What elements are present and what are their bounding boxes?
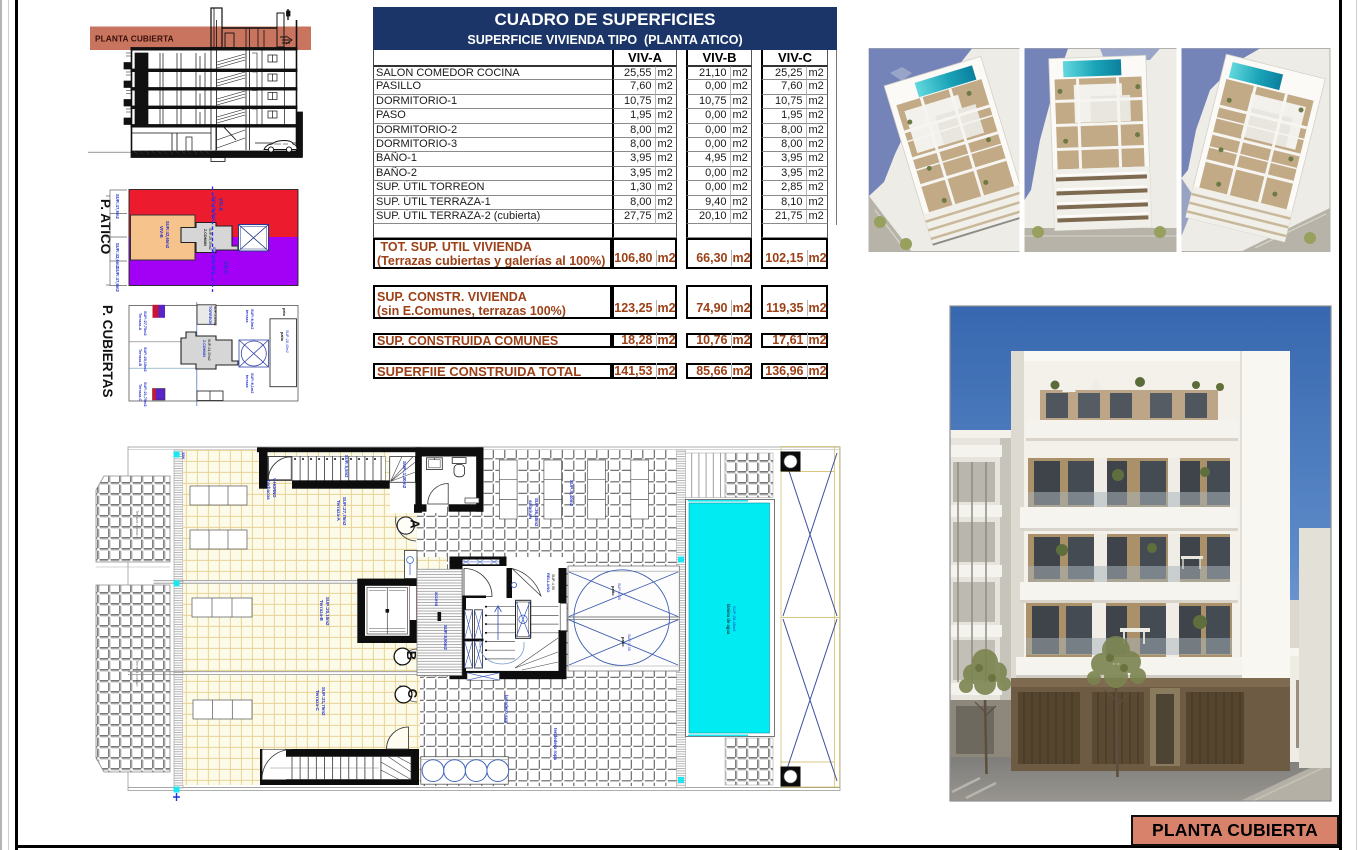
svg-text:P. ATICO: P. ATICO: [98, 199, 113, 254]
svg-text:SUP.:27,75m2: SUP.:27,75m2: [143, 311, 147, 336]
svg-text:SUP.:28,45m2: SUP.:28,45m2: [285, 330, 289, 353]
svg-text:patio: patio: [280, 332, 284, 342]
svg-text:solarium: solarium: [528, 500, 533, 519]
svg-text:lámina de agua: lámina de agua: [726, 604, 731, 635]
svg-text:Z.COMUN: Z.COMUN: [203, 229, 207, 246]
svg-text:Terraza comun: Terraza comun: [135, 510, 140, 536]
svg-text:SUP.:9,40m2: SUP.:9,40m2: [569, 480, 574, 507]
svg-text:SUP.:29,35m2: SUP.:29,35m2: [208, 228, 212, 250]
svg-text:SUP.:27,75m2: SUP.:27,75m2: [342, 497, 347, 526]
svg-text:SUP.:42,65m2: SUP.:42,65m2: [165, 221, 170, 249]
svg-text:terraza: terraza: [245, 375, 249, 388]
svg-text:acceso: acceso: [434, 592, 439, 607]
svg-text:SUP.:8,90m2: SUP.:8,90m2: [443, 625, 448, 651]
svg-text:barbacoa: barbacoa: [266, 480, 271, 500]
svg-text:SUP.:5,5m2: SUP.:5,5m2: [344, 455, 349, 478]
svg-text:SUP.:9,35: SUP.:9,35: [617, 583, 621, 600]
svg-text:C: C: [405, 689, 420, 699]
svg-text:terraza: terraza: [245, 310, 249, 323]
svg-text:SUP.:36,40m2: SUP.:36,40m2: [534, 498, 539, 527]
svg-text:SUP.:8,0m2: SUP.:8,0m2: [250, 309, 254, 329]
svg-text:SUP.:8,1m2: SUP.:8,1m2: [250, 373, 254, 393]
svg-text:Z.COMUN: Z.COMUN: [202, 340, 206, 357]
svg-text:SUP.:4,95: SUP.:4,95: [551, 574, 555, 590]
svg-text:SUP.:106,8m2: SUP.:106,8m2: [212, 196, 216, 221]
svg-text:SUP.:20,10m2: SUP.:20,10m2: [325, 597, 330, 626]
svg-text:VIV-C: VIV-C: [222, 261, 228, 274]
svg-text:Terraza-C: Terraza-C: [315, 690, 320, 712]
svg-text:SUP.:21,75m2: SUP.:21,75m2: [143, 382, 147, 407]
svg-text:SUP.:28,45m2: SUP.:28,45m2: [732, 606, 737, 632]
svg-text:SUP.:42,6m2: SUP.:42,6m2: [115, 243, 120, 269]
svg-text:RELLANO: RELLANO: [546, 573, 551, 592]
svg-text:SUP.:20,10m2: SUP.:20,10m2: [143, 347, 147, 372]
svg-text:B: B: [404, 651, 419, 660]
svg-text:patio: patio: [621, 637, 626, 647]
svg-text:P. CUBIERTAS: P. CUBIERTAS: [100, 305, 115, 398]
svg-text:Terraza-B: Terraza-B: [319, 600, 324, 622]
svg-text:Terraza-B: Terraza-B: [138, 349, 142, 366]
svg-text:SUP.:24,35m2: SUP.:24,35m2: [207, 339, 211, 361]
svg-text:A: A: [407, 519, 422, 529]
svg-text:PLANTA CUBIERTA: PLANTA CUBIERTA: [95, 34, 174, 44]
svg-text:SUP.:2,85m2: SUP.:2,85m2: [213, 306, 217, 326]
svg-text:VIV-A: VIV-A: [217, 198, 223, 211]
svg-text:lavadero sup: lavadero sup: [504, 695, 509, 724]
svg-text:TORREON: TORREON: [208, 306, 212, 325]
svg-text:VIV-B: VIV-B: [159, 226, 164, 239]
svg-text:V-HORNO: V-HORNO: [272, 478, 277, 498]
svg-text:Terraza comun: Terraza comun: [135, 660, 140, 686]
svg-text:Terraza-C: Terraza-C: [138, 384, 142, 401]
svg-text:peto: peto: [282, 308, 286, 317]
svg-text:SUP.:1,30m2: SUP.:1,30m2: [402, 461, 407, 489]
svg-text:patio: patio: [611, 586, 616, 596]
svg-text:SUP.:9,35: SUP.:9,35: [627, 634, 631, 651]
svg-text:Terraza-A: Terraza-A: [336, 500, 341, 522]
svg-text:SUP.:47,6m2: SUP.:47,6m2: [115, 267, 120, 293]
svg-text:35K: 35K: [181, 452, 186, 459]
svg-text:SUP.:102,15m2: SUP.:102,15m2: [212, 247, 216, 274]
svg-text:tendedero ropa: tendedero ropa: [553, 728, 558, 761]
svg-text:SUP.:21,75m2: SUP.:21,75m2: [321, 687, 326, 716]
svg-text:SUP.:47,9m2: SUP.:47,9m2: [115, 194, 120, 220]
svg-text:Terraza-A: Terraza-A: [138, 313, 142, 330]
